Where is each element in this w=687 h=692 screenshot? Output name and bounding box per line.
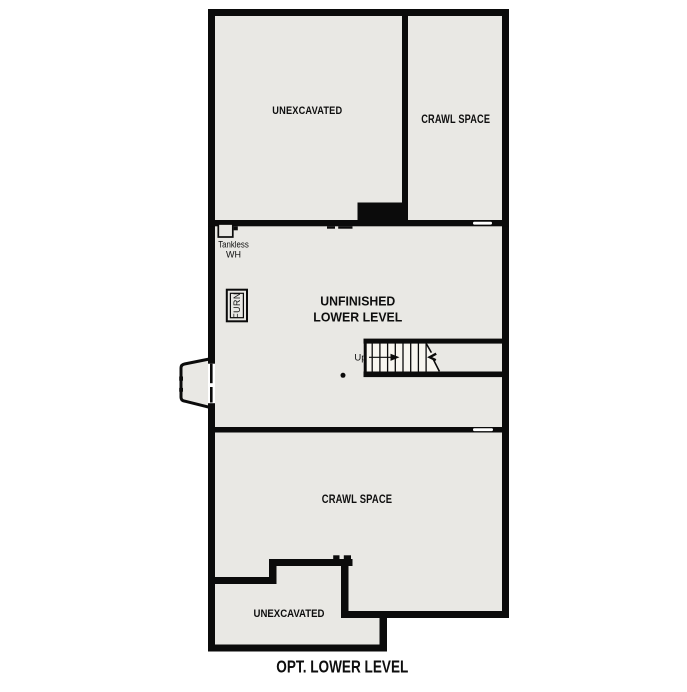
svg-text:FURN: FURN	[232, 292, 242, 318]
svg-text:OPT. LOWER LEVEL: OPT. LOWER LEVEL	[276, 657, 408, 677]
svg-text:Up: Up	[354, 353, 366, 364]
svg-text:LOWER LEVEL: LOWER LEVEL	[313, 309, 402, 324]
svg-text:UNEXCAVATED: UNEXCAVATED	[254, 608, 325, 620]
svg-text:UNEXCAVATED: UNEXCAVATED	[272, 105, 342, 117]
svg-text:UNFINISHED: UNFINISHED	[320, 294, 395, 309]
svg-text:Tankless: Tankless	[218, 240, 249, 250]
svg-text:CRAWL SPACE: CRAWL SPACE	[322, 494, 393, 506]
svg-text:WH: WH	[226, 250, 241, 260]
svg-text:CRAWL SPACE: CRAWL SPACE	[421, 114, 490, 126]
